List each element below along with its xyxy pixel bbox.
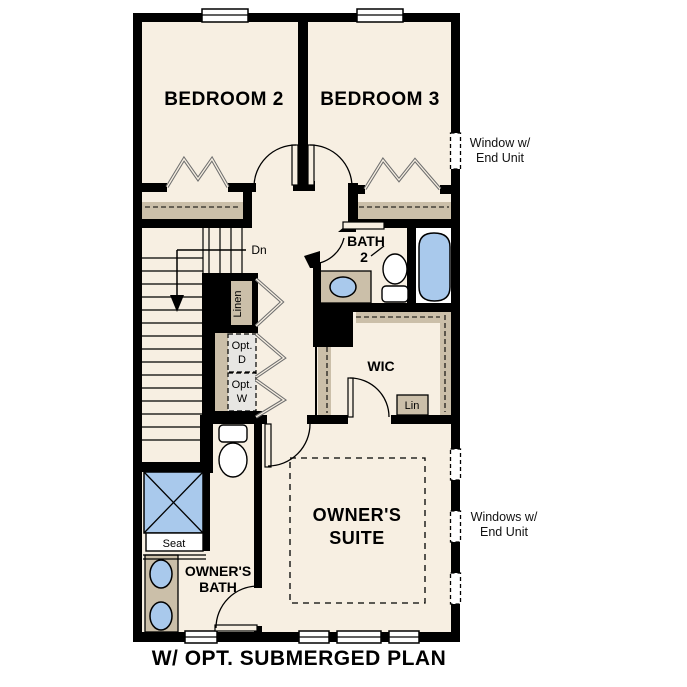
owners-toilet (219, 425, 247, 477)
bath2-sink (330, 277, 356, 297)
opt-dryer-label-line1: Opt. (232, 340, 253, 352)
bath2-label-line2: 2 (360, 249, 368, 265)
bedroom2-closet-shelf (141, 202, 243, 219)
bathtub (419, 233, 450, 301)
window-end-unit-note-line1: Window w/ (470, 136, 531, 150)
linen-label: Linen (232, 291, 244, 318)
owners-bath-label-line2: BATH (199, 579, 237, 595)
window-end-unit-note-line2: End Unit (476, 151, 524, 165)
opt-washer-label-line2: W (237, 393, 248, 405)
bedroom3-label: BEDROOM 3 (320, 89, 440, 110)
opt-dryer-label-line2: D (238, 354, 246, 366)
wall-bedroom-divider (298, 13, 308, 183)
wall-left (133, 13, 142, 642)
windows-end-unit-note-line2: End Unit (480, 525, 528, 539)
optional-window-suite-3 (451, 573, 461, 604)
optional-window-suite-1 (451, 449, 461, 480)
optional-window-suite-2 (451, 511, 461, 542)
wic-shelf-left (318, 345, 331, 415)
windows-end-unit-note-line1: Windows w/ (471, 510, 538, 524)
bedroom2-label: BEDROOM 2 (164, 89, 284, 110)
wall-suite-bath (254, 415, 262, 588)
wall-top (133, 13, 460, 22)
bath2-toilet (382, 254, 408, 302)
bedroom3-closet-shelf (356, 202, 451, 219)
floor-plan-page: BEDROOM 2 BEDROOM 3 BATH 2 WIC OWNER'S S… (0, 0, 687, 687)
opt-washer-label-line1: Opt. (232, 379, 253, 391)
bath2-label-line1: BATH (347, 233, 385, 249)
wic-label: WIC (367, 358, 394, 374)
owners-suite-label-line1: OWNER'S (313, 505, 402, 525)
wall-right (451, 13, 460, 642)
owners-suite-label-line2: SUITE (329, 528, 385, 548)
laundry-closet-shelf (215, 333, 228, 411)
wall-wic-top (352, 303, 460, 312)
floor-plan-canvas: BEDROOM 2 BEDROOM 3 BATH 2 WIC OWNER'S S… (0, 0, 687, 687)
stairs-down-label: Dn (251, 243, 266, 257)
owners-bath-label-line1: OWNER'S (185, 563, 251, 579)
lin-label: Lin (405, 400, 420, 412)
shower-seat-label: Seat (163, 538, 186, 550)
optional-window-bedroom3 (451, 133, 461, 169)
owners-sink-2 (150, 602, 172, 630)
plan-title: W/ OPT. SUBMERGED PLAN (152, 647, 447, 670)
owners-sink-1 (150, 560, 172, 588)
